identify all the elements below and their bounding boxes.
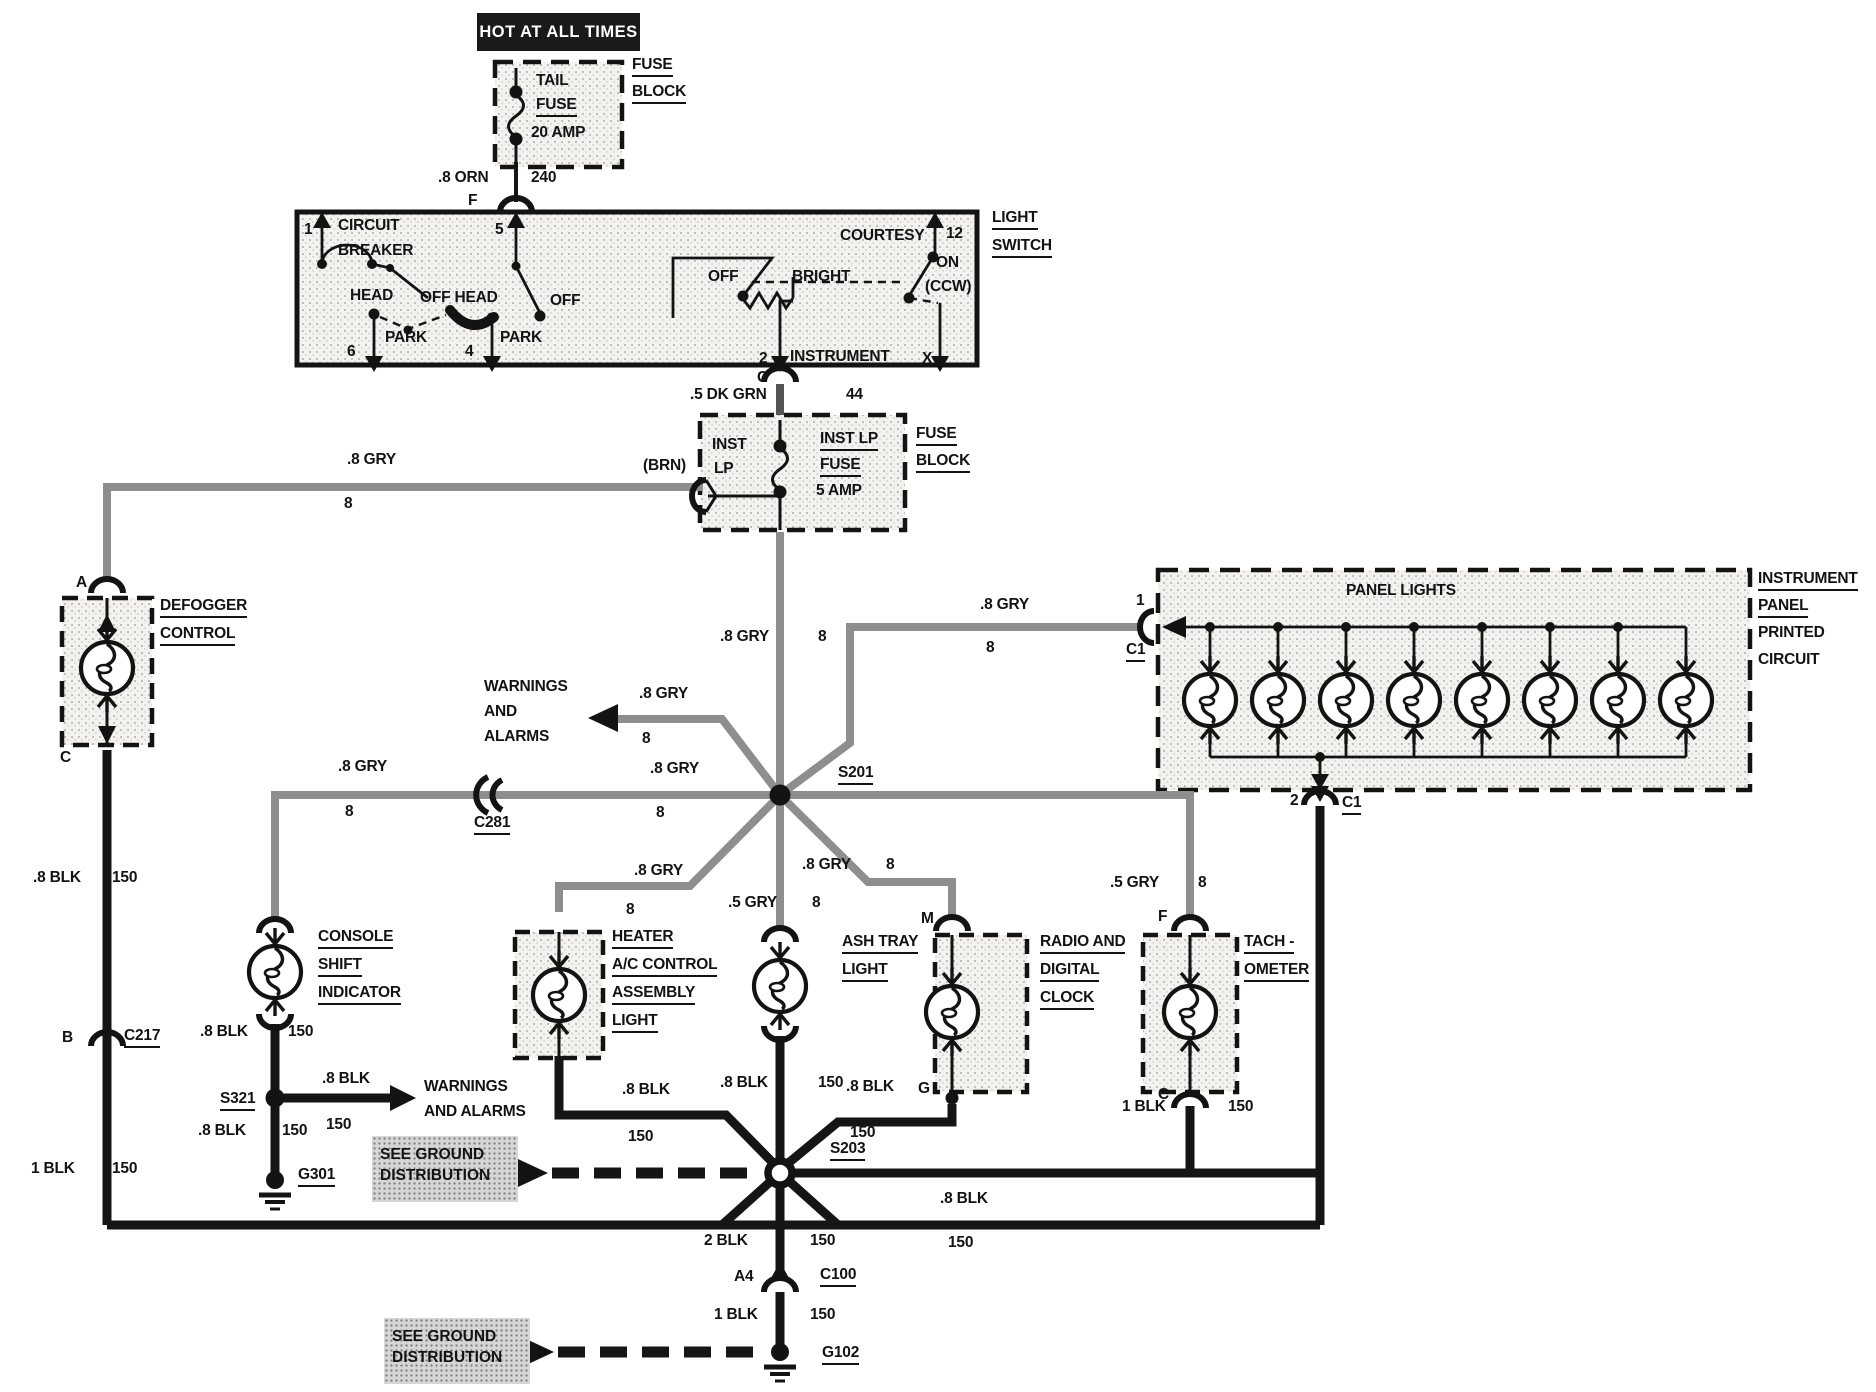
see-ground-distribution-2: SEE GROUND DISTRIBUTION bbox=[384, 1318, 530, 1384]
pin-1-panel: 1 bbox=[1136, 592, 1144, 610]
console-label-2: SHIFT bbox=[318, 956, 362, 977]
heater-label-1: HEATER bbox=[612, 928, 673, 949]
wire-gry-s-circuit: 8 bbox=[812, 894, 820, 912]
warnings-2-line1: WARNINGS bbox=[424, 1078, 508, 1096]
fuse-block-2-line1: FUSE bbox=[916, 425, 957, 446]
wire-gry-w-left-circuit: 8 bbox=[345, 803, 353, 821]
wire-blk-defog: .8 BLK bbox=[33, 869, 81, 887]
ground-g301-symbol bbox=[259, 1171, 291, 1209]
light-switch-label-1: LIGHT bbox=[992, 209, 1038, 230]
instlp-fuse-1: INST LP bbox=[820, 430, 878, 451]
pin-m-radio: M bbox=[921, 910, 934, 928]
ls-bright: BRIGHT bbox=[792, 268, 850, 286]
console-label-3: INDICATOR bbox=[318, 984, 401, 1005]
connector-a-defogger bbox=[91, 579, 123, 593]
pin-b-c217: B bbox=[62, 1029, 73, 1047]
connector-c1-top bbox=[1140, 611, 1154, 643]
radio-label-1: RADIO AND bbox=[1040, 933, 1125, 954]
wire-gry-nw-circuit: 8 bbox=[642, 730, 650, 748]
pin-c-lightswitch: C bbox=[757, 369, 768, 387]
wire-brn: (BRN) bbox=[643, 457, 686, 475]
ls-park-2: PARK bbox=[500, 329, 542, 347]
see-ground-2-line2: DISTRIBUTION bbox=[392, 1347, 524, 1368]
connector-ashtray-top bbox=[764, 928, 796, 942]
instlp-side-1: INST bbox=[712, 436, 747, 454]
ashtray-label-1: ASH TRAY bbox=[842, 933, 918, 954]
pin-2-panel: 2 bbox=[1290, 792, 1298, 810]
conn-c281: C281 bbox=[474, 814, 510, 835]
wire-1blk-bottom: 1 BLK bbox=[714, 1306, 758, 1324]
wire-blk-console2: .8 BLK bbox=[198, 1122, 246, 1140]
tail-fuse-name-1: TAIL bbox=[536, 72, 569, 90]
wire-dkgrn-gauge: .5 DK GRN bbox=[690, 386, 767, 404]
wire-gry-top-circuit: 8 bbox=[344, 495, 352, 513]
wire-gry-w-right: .8 GRY bbox=[650, 760, 699, 778]
wire-blk-console: .8 BLK bbox=[200, 1023, 248, 1041]
wire-1blk-defog: 1 BLK bbox=[31, 1160, 75, 1178]
wire-gry-nw: .8 GRY bbox=[639, 685, 688, 703]
splice-s201-dot bbox=[770, 785, 791, 806]
wire-blk-defog-circuit: 150 bbox=[112, 869, 137, 887]
see-ground-arrow-1 bbox=[518, 1159, 548, 1187]
ls-head: HEAD bbox=[350, 287, 393, 305]
tail-fuse-name-2: FUSE bbox=[536, 96, 577, 117]
wire-blk-warn: .8 BLK bbox=[322, 1070, 370, 1088]
splice-s321: S321 bbox=[220, 1090, 255, 1111]
wire-gry-se: .8 GRY bbox=[802, 856, 851, 874]
wire-blk-heater-circuit: 150 bbox=[628, 1128, 653, 1146]
see-ground-1-line1: SEE GROUND bbox=[380, 1144, 512, 1165]
ground-g301: G301 bbox=[298, 1166, 335, 1187]
splice-s201: S201 bbox=[838, 764, 873, 785]
connector-m-radio bbox=[936, 917, 968, 931]
wire-2blk-circuit: 150 bbox=[810, 1232, 835, 1250]
fuse-block-1-line1: FUSE bbox=[632, 56, 673, 77]
wire-gry-w-left: .8 GRY bbox=[338, 758, 387, 776]
ls-pin-5: 5 bbox=[495, 221, 503, 239]
wire-blk-console2-circuit: 150 bbox=[282, 1122, 307, 1140]
warnings-arrow-top bbox=[588, 704, 618, 732]
wire-gry-se-circuit: 8 bbox=[886, 856, 894, 874]
conn-c1-top: C1 bbox=[1126, 641, 1145, 662]
tail-fuse-rating: 20 AMP bbox=[531, 124, 585, 142]
connector-c100 bbox=[764, 1278, 796, 1292]
panel-lights-title: PANEL LIGHTS bbox=[1346, 582, 1456, 600]
instr-panel-2: PANEL bbox=[1758, 597, 1808, 618]
pin-a4: A4 bbox=[734, 1268, 753, 1286]
heater-label-4: LIGHT bbox=[612, 1012, 658, 1033]
ls-park-1: PARK bbox=[385, 329, 427, 347]
ls-ccw: (CCW) bbox=[925, 278, 971, 296]
pin-f-tach: F bbox=[1158, 908, 1167, 926]
wire-gry-w-right-circuit: 8 bbox=[656, 804, 664, 822]
connector-console-bottom bbox=[259, 1014, 291, 1028]
ground-g102-symbol bbox=[764, 1343, 796, 1381]
defogger-label-2: CONTROL bbox=[160, 625, 235, 646]
wire-gry-e-circuit: 8 bbox=[1198, 874, 1206, 892]
light-switch-label-2: SWITCH bbox=[992, 237, 1052, 258]
connector-c-tach bbox=[1174, 1094, 1206, 1108]
splice-s321-dot bbox=[266, 1089, 285, 1108]
ls-circuit-breaker-2: BREAKER bbox=[338, 242, 413, 260]
black-wires bbox=[107, 750, 1320, 1346]
connector-a4-arrow bbox=[771, 1262, 789, 1278]
splice-s203: S203 bbox=[830, 1140, 865, 1161]
pin-c-defogger: C bbox=[60, 749, 71, 767]
warnings-1-line3: ALARMS bbox=[484, 728, 549, 746]
wire-1blk-tach-circuit: 150 bbox=[1228, 1098, 1253, 1116]
instlp-fuse-2: FUSE bbox=[820, 456, 861, 477]
wire-orn-circuit: 240 bbox=[531, 169, 556, 187]
ls-pin-12: 12 bbox=[946, 225, 963, 243]
wire-blk-radio: .8 BLK bbox=[846, 1078, 894, 1096]
see-ground-distribution-1: SEE GROUND DISTRIBUTION bbox=[372, 1136, 518, 1202]
ls-instrument: INSTRUMENT bbox=[790, 348, 890, 366]
wire-gry-ne-circuit: 8 bbox=[986, 639, 994, 657]
wire-blk-ash-circuit: 150 bbox=[818, 1074, 843, 1092]
warnings-2-line2: AND ALARMS bbox=[424, 1103, 526, 1121]
pin-f-lightswitch: F bbox=[468, 192, 477, 210]
pin-g-radio: G bbox=[918, 1080, 930, 1098]
wire-gry-e: .5 GRY bbox=[1110, 874, 1159, 892]
instlp-side-2: LP bbox=[714, 460, 733, 478]
warnings-arrow-bottom bbox=[390, 1085, 416, 1111]
wire-gry-s: .5 GRY bbox=[728, 894, 777, 912]
wire-gry-n-circuit: 8 bbox=[818, 628, 826, 646]
tach-label-1: TACH - bbox=[1244, 933, 1294, 954]
wire-gry-top: .8 GRY bbox=[347, 451, 396, 469]
instr-panel-3: PRINTED bbox=[1758, 624, 1825, 642]
wire-gry-n: .8 GRY bbox=[720, 628, 769, 646]
ls-pin-1: 1 bbox=[304, 221, 312, 239]
conn-c1-bottom: C1 bbox=[1342, 794, 1361, 815]
defogger-label-1: DEFOGGER bbox=[160, 597, 247, 618]
wire-1blk-tach: 1 BLK bbox=[1122, 1098, 1166, 1116]
instr-panel-4: CIRCUIT bbox=[1758, 651, 1819, 669]
wire-blk-bottom-r-circuit: 150 bbox=[948, 1234, 973, 1252]
ls-pin-2: 2 bbox=[759, 350, 767, 368]
dashed-ground-wires bbox=[552, 1173, 760, 1352]
ashtray-label-2: LIGHT bbox=[842, 961, 888, 982]
wire-orn-gauge: .8 ORN bbox=[438, 169, 488, 187]
ls-off-right: OFF bbox=[708, 268, 738, 286]
tach-label-2: OMETER bbox=[1244, 961, 1309, 982]
fuse-block-2-line2: BLOCK bbox=[916, 452, 970, 473]
ls-on: ON bbox=[936, 254, 959, 272]
wire-gry-ne: .8 GRY bbox=[980, 596, 1029, 614]
wire-blk-console-circuit: 150 bbox=[288, 1023, 313, 1041]
ls-pin-4: 4 bbox=[465, 343, 473, 361]
instlp-rating: 5 AMP bbox=[816, 482, 862, 500]
ls-circuit-breaker-1: CIRCUIT bbox=[338, 217, 399, 235]
ls-off-left: OFF bbox=[550, 292, 580, 310]
wiring-diagram-page: HOT AT ALL TIMES SEE GROUND DISTRIBUTION… bbox=[0, 0, 1876, 1392]
ls-pin-x: X bbox=[922, 350, 932, 368]
wire-gry-sw: .8 GRY bbox=[634, 862, 683, 880]
connector-c-lightswitch bbox=[764, 368, 796, 382]
conn-c100: C100 bbox=[820, 1266, 856, 1287]
wire-blk-bottom-r: .8 BLK bbox=[940, 1190, 988, 1208]
see-ground-1-line2: DISTRIBUTION bbox=[380, 1165, 512, 1186]
wire-2blk: 2 BLK bbox=[704, 1232, 748, 1250]
instr-panel-1: INSTRUMENT bbox=[1758, 570, 1858, 591]
console-label-1: CONSOLE bbox=[318, 928, 393, 949]
radio-label-3: CLOCK bbox=[1040, 989, 1094, 1010]
ls-pin-6: 6 bbox=[347, 343, 355, 361]
ls-off-head: OFF HEAD bbox=[420, 289, 498, 307]
wire-blk-ash: .8 BLK bbox=[720, 1074, 768, 1092]
heater-label-3: ASSEMBLY bbox=[612, 984, 695, 1005]
splice-s203-ring bbox=[768, 1161, 792, 1185]
radio-label-2: DIGITAL bbox=[1040, 961, 1099, 982]
warnings-1-line1: WARNINGS bbox=[484, 678, 568, 696]
wire-1blk-bottom-circuit: 150 bbox=[810, 1306, 835, 1324]
fuse-block-1-line2: BLOCK bbox=[632, 83, 686, 104]
wire-gry-defogger bbox=[107, 487, 703, 580]
hot-at-all-times-banner: HOT AT ALL TIMES bbox=[477, 13, 640, 51]
wiring-diagram-canvas bbox=[0, 0, 1876, 1392]
wire-gry-sw-circuit: 8 bbox=[626, 901, 634, 919]
wire-blk-heater: .8 BLK bbox=[622, 1081, 670, 1099]
wire-blk-warn-circuit: 150 bbox=[326, 1116, 351, 1134]
wire-gry-panel bbox=[780, 627, 1143, 795]
heater-label-2: A/C CONTROL bbox=[612, 956, 717, 977]
wire-dkgrn-circuit: 44 bbox=[846, 386, 863, 404]
pin-a-defogger: A bbox=[76, 574, 87, 592]
conn-c217: C217 bbox=[124, 1027, 160, 1048]
wire-1blk-defog-circuit: 150 bbox=[112, 1160, 137, 1178]
warnings-1-line2: AND bbox=[484, 703, 517, 721]
wire-gry-warnings bbox=[616, 719, 780, 795]
connector-f-tach bbox=[1174, 917, 1206, 931]
ground-g102: G102 bbox=[822, 1344, 859, 1365]
ls-courtesy: COURTESY bbox=[840, 227, 925, 245]
see-ground-2-line1: SEE GROUND bbox=[392, 1326, 524, 1347]
